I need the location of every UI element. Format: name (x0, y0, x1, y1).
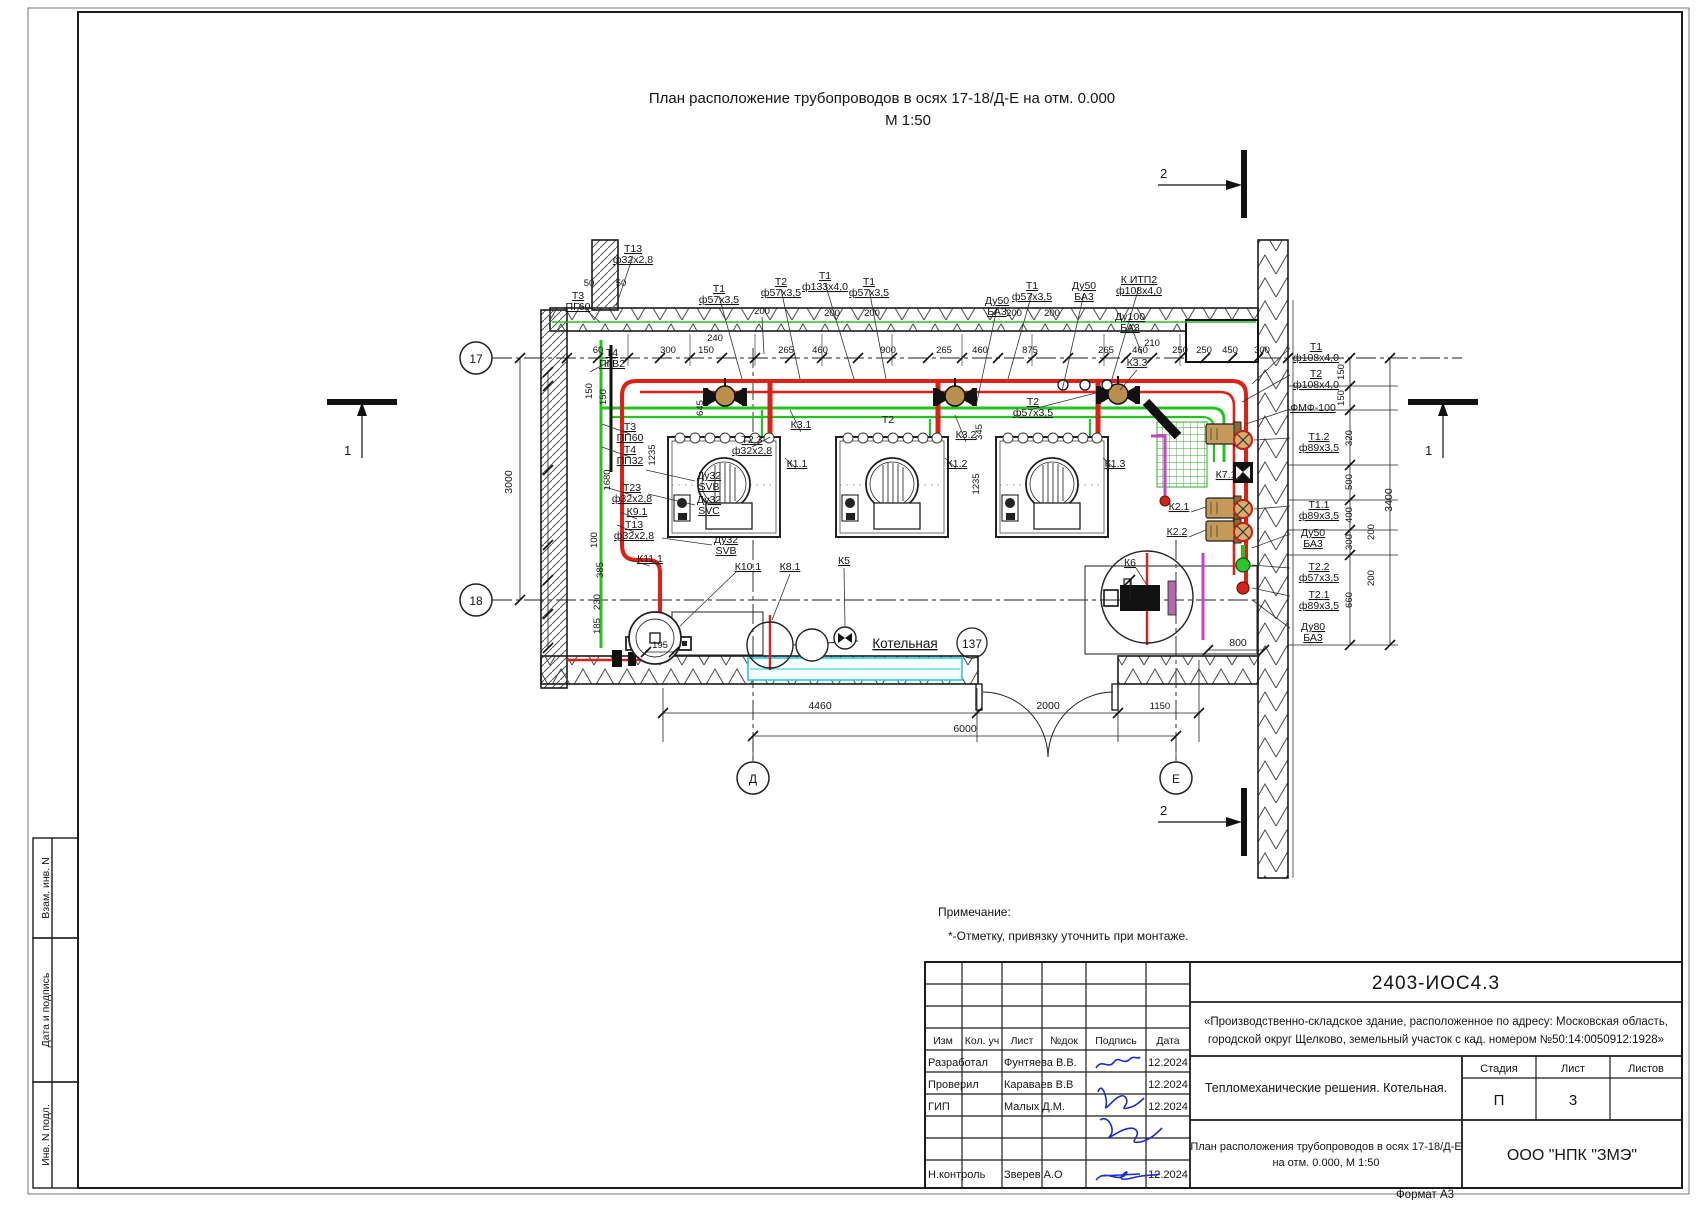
section-title: Тепломеханические решения. Котельная. (1205, 1081, 1447, 1095)
row-date-0: 12.2024 (1148, 1057, 1188, 1069)
row-name-3: Зверев А.О (1004, 1169, 1063, 1181)
axis-label-e: Е (1172, 772, 1180, 786)
annotation-label: 250 (1172, 345, 1188, 356)
annotation-label: 460 (1132, 345, 1148, 356)
section-label-bottom: 2 (1160, 803, 1167, 818)
annotation-label: 900 (880, 345, 896, 356)
annotation-label: К5 (838, 555, 850, 567)
annotation-label: 875 (1022, 345, 1038, 356)
annotation-label: 6000 (953, 723, 977, 735)
annotation-label: 3400 (1383, 488, 1395, 512)
annotation-label: Т2.2ф57х3,5 (1299, 561, 1339, 584)
annotation-label: К3.2 (956, 429, 977, 441)
annotation-label: 265 (1098, 345, 1114, 356)
annotation-label: Ду50БА3 (1072, 280, 1096, 303)
plan-drawing: Котельная 137 17 18 Д Е 2 2 1 (327, 150, 1478, 878)
company-name: ООО "НПК "ЗМЭ" (1507, 1147, 1637, 1164)
annotation-label: Т2ф57х3,5 (761, 276, 801, 299)
annotation-label: 150 (1336, 364, 1347, 380)
col-doc: №док (1050, 1035, 1078, 1047)
annotation-label: К7.1 (1216, 469, 1237, 481)
drawing-title-line2: М 1:50 (885, 112, 931, 129)
section-label-left: 1 (344, 443, 351, 458)
listov-header: Листов (1628, 1063, 1664, 1075)
annotation-label: Ду32SVB (714, 534, 738, 557)
room-number: 137 (962, 637, 982, 651)
annotation-label: 200 (1044, 308, 1060, 319)
annotation-label: Т1ф133х4,0 (802, 270, 848, 293)
annotation-label: 200 (824, 308, 840, 319)
annotation-label: Т23ф32х2,8 (612, 482, 652, 505)
annotation-label: 230 (592, 594, 603, 610)
note-head: Примечание: (938, 905, 1011, 919)
annotation-label: 195 (652, 640, 668, 651)
section-label-right: 1 (1425, 443, 1432, 458)
doc-number: 2403-ИОС4.3 (1372, 973, 1500, 994)
row-name-1: Караваев В.В (1004, 1079, 1073, 1091)
annotation-label: К2.1 (1169, 501, 1190, 513)
annotation-label: 250 (1196, 345, 1212, 356)
annotation-label: ФМФ-100 (1290, 402, 1336, 414)
annotation-label: К11.1 (637, 553, 663, 565)
annotation-label: К9.1 (627, 506, 648, 518)
annotation-label: Ду80БА3 (1301, 621, 1325, 644)
annotation-label: 200 (754, 306, 770, 317)
axis-label-d: Д (749, 772, 757, 786)
annotation-label: К3.1 (791, 419, 812, 431)
annotation-label: 500 (1344, 474, 1355, 490)
sheet-title-1: План расположения трубопроводов в осях 1… (1190, 1141, 1461, 1153)
annotation-label: Т13ф32х2,8 (614, 519, 654, 542)
col-izm: Изм (933, 1035, 953, 1047)
row-date-1: 12.2024 (1148, 1079, 1188, 1091)
annotation-label: 150 (584, 383, 595, 399)
annotation-label: Т1ф57х3,5 (849, 276, 889, 299)
drawing-title-line1: План расположение трубопроводов в осях 1… (649, 90, 1115, 107)
annotation-label: К1.3 (1105, 458, 1126, 470)
annotation-label: 2000 (1036, 700, 1060, 712)
annotation-label: Т1ф108х4,0 (1293, 341, 1339, 364)
annotation-label: 200 (1366, 524, 1377, 540)
annotation-label: Ду50БА3 (1301, 527, 1325, 550)
sheet-title-2: на отм. 0.000, М 1:50 (1272, 1157, 1379, 1169)
row-role-2: ГИП (928, 1101, 950, 1113)
row-role-3: Н.контроль (928, 1169, 986, 1181)
window (748, 658, 962, 680)
title-block: 2403-ИОС4.3 «Производственно-складское з… (925, 962, 1682, 1188)
annotation-label: Т1ф57х3,5 (1012, 280, 1052, 303)
annotation-label: 460 (812, 345, 828, 356)
annotation-label: 385 (595, 562, 606, 578)
annotation-label: Т2ф108х4,0 (1293, 368, 1339, 391)
axis-label-17: 17 (469, 352, 483, 366)
annotation-label: 800 (1229, 637, 1247, 649)
annotation-label: 150 (698, 345, 714, 356)
annotation-label: 300 (1344, 534, 1355, 550)
annotation-label: Т2ф57х3,5 (1013, 396, 1053, 419)
annotation-label: 200 (1366, 570, 1377, 586)
row-role-1: Проверил (928, 1079, 979, 1091)
list-value: 3 (1569, 1092, 1577, 1109)
annotation-label: 150 (1336, 390, 1347, 406)
annotation-label: 200 (1006, 308, 1022, 319)
annotation-label: 645 (695, 400, 706, 416)
annotation-label: 100 (589, 532, 600, 548)
format-label: Формат А3 (1396, 1189, 1454, 1200)
col-list: Лист (1011, 1035, 1034, 1047)
annotation-label: 265 (778, 345, 794, 356)
project-desc-1: «Производственно-складское здание, распо… (1204, 1016, 1668, 1028)
annotation-label: 240 (707, 333, 723, 344)
col-date: Дата (1156, 1035, 1179, 1047)
annotation-label: 60 (593, 345, 604, 356)
annotation-label: Т2.1ф89х3,5 (1299, 589, 1339, 612)
section-label-top: 2 (1160, 166, 1167, 181)
annotation-label: Т1.1ф89х3,5 (1299, 499, 1339, 522)
annotation-label: Т3ПГ60 (566, 290, 591, 313)
annotation-label: К1.1 (787, 458, 808, 470)
annotation-label: 660 (1344, 592, 1355, 608)
annotation-label: 50 (616, 278, 627, 289)
annotation-label: 460 (972, 345, 988, 356)
project-desc-2: городской округ Щелково, земельный участ… (1208, 1034, 1664, 1046)
note-body: *-Отметку, привязку уточнить при монтаже… (948, 929, 1188, 943)
col-sign: Подпись (1095, 1035, 1137, 1047)
annotation-label: Ду32SVC (697, 494, 721, 517)
signatures (1096, 1057, 1162, 1180)
annotation-label: К2.2 (1167, 526, 1188, 538)
annotation-label: К6 (1124, 557, 1136, 569)
annotation-label: 300 (660, 345, 676, 356)
annotation-label: 50 (584, 278, 595, 289)
annotation-label: Т1ф57х3,5 (699, 283, 739, 306)
annotation-label: 400 (1344, 507, 1355, 523)
drawing-sheet: Взам. инв. N Дата и подпись Инв. N подл.… (0, 0, 1697, 1200)
annotation-label: Ду32SVB (697, 470, 721, 493)
annotation-label: 320 (1344, 430, 1355, 446)
annotation-label: 3000 (503, 470, 515, 494)
annotation-label: 450 (1222, 345, 1238, 356)
annotation-label: К1.2 (947, 458, 968, 470)
annotation-label: 4460 (808, 700, 832, 712)
annotation-label: 300 (1254, 345, 1270, 356)
annotation-label: 1235 (647, 444, 658, 465)
annotation-label: Т13ф32х2,8 (613, 243, 653, 266)
room-name: Котельная (872, 636, 937, 651)
row-name-0: Фунтяева В.В. (1004, 1057, 1077, 1069)
axis-label-18: 18 (469, 594, 483, 608)
row-date-2: 12.2024 (1148, 1101, 1188, 1113)
annotation-label: К10.1 (735, 561, 762, 573)
annotation-label: 200 (864, 308, 880, 319)
stage-header: Стадия (1480, 1063, 1518, 1075)
foundations (626, 566, 1257, 655)
door (976, 684, 1118, 757)
annotation-label: Т2 (882, 414, 894, 426)
annotation-label: К3.3 (1127, 357, 1148, 369)
annotation-label: 185 (592, 618, 603, 634)
row-role-0: Разработал (928, 1057, 988, 1069)
annotation-label: Т1.2ф89х3,5 (1299, 431, 1339, 454)
annotation-label: 300 (1131, 592, 1142, 608)
stage-value: П (1494, 1092, 1505, 1109)
col-kol: Кол. уч (965, 1035, 999, 1047)
side-stamp-label-3: Инв. N подл. (40, 1104, 52, 1166)
annotation-label: 1150 (1150, 701, 1170, 712)
annotation-label: К ИТП2ф108х4,0 (1116, 274, 1162, 297)
annotation-label: 150 (598, 389, 609, 405)
annotation-label: 1235 (971, 473, 982, 494)
row-name-2: Малых Д.М. (1004, 1101, 1065, 1113)
annotation-label: К8.1 (780, 561, 801, 573)
annotation-label: 1680 (602, 469, 613, 490)
side-stamp-label-1: Взам. инв. N (40, 857, 52, 918)
side-stamp-label-2: Дата и подпись (40, 972, 52, 1047)
annotation-label: 265 (936, 345, 952, 356)
list-header: Лист (1561, 1063, 1585, 1075)
axis-bubbles (460, 342, 1192, 794)
